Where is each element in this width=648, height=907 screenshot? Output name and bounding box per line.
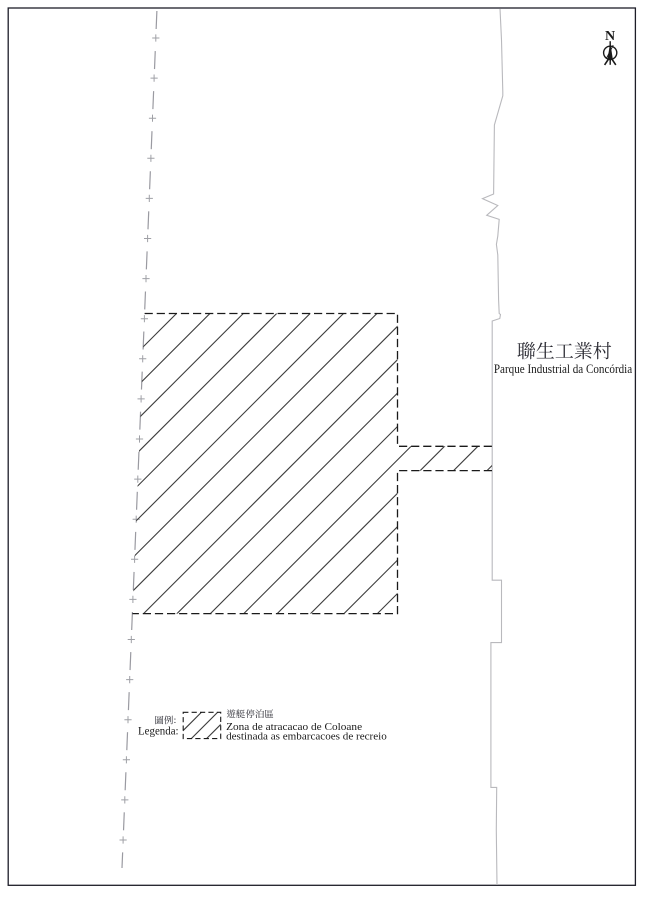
svg-text::: : bbox=[174, 716, 177, 726]
svg-text:Legenda:: Legenda: bbox=[138, 726, 179, 738]
svg-text:Parque Industrial da Concórdia: Parque Industrial da Concórdia bbox=[494, 362, 633, 376]
svg-text:destinada as embarcacoes de re: destinada as embarcacoes de recreio bbox=[226, 730, 387, 742]
